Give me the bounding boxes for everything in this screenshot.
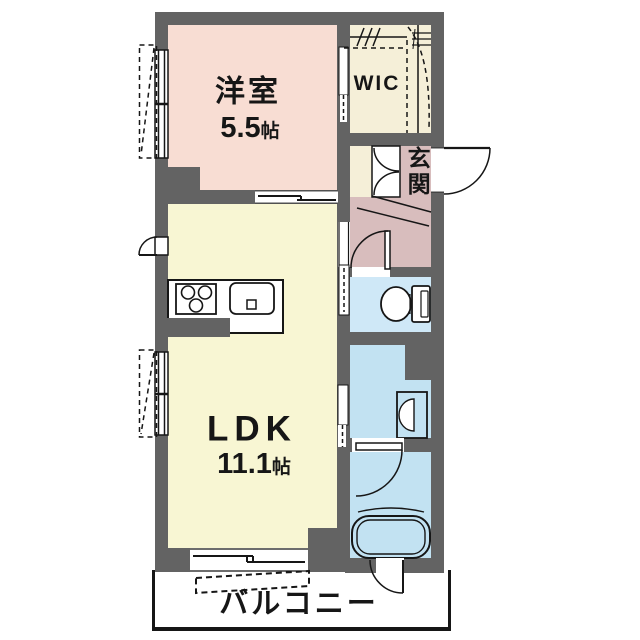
washbasin-icon xyxy=(397,392,427,438)
room-label-ldk: LDK xyxy=(207,412,297,449)
toilet-icon xyxy=(381,286,430,322)
room-label-entrance: 玄関 xyxy=(405,146,429,198)
sliding-door-icon xyxy=(190,548,308,572)
pocket-door-icon xyxy=(339,265,349,315)
window-icon xyxy=(140,350,169,437)
front-door-icon xyxy=(431,147,490,194)
kitchen-counter xyxy=(155,280,283,337)
room-label-balcony: バルコニー xyxy=(219,589,378,619)
plan-symbols xyxy=(0,0,640,640)
room-size-ldk: 11.1帖 xyxy=(217,449,291,479)
room-size-western: 5.5帖 xyxy=(220,113,279,143)
room-label-wic: WIC xyxy=(354,73,401,95)
doorway-opening xyxy=(338,222,350,267)
room-label-western: 洋室 xyxy=(215,76,281,108)
window-icon xyxy=(140,45,169,158)
shoe-cabinet-doors-icon xyxy=(372,146,400,197)
entrance-step-lines xyxy=(357,196,431,226)
pocket-door-icon xyxy=(338,385,348,447)
toilet-door-icon xyxy=(351,231,390,277)
bathtub-icon xyxy=(352,508,430,558)
casement-window-icon xyxy=(139,237,168,255)
bath-door-icon xyxy=(352,438,404,496)
floor-plan: 洋室 5.5帖 WIC 玄関 LDK 11.1帖 バルコニー xyxy=(0,0,640,640)
pocket-door-icon xyxy=(339,47,348,122)
sliding-door-icon xyxy=(255,190,338,204)
